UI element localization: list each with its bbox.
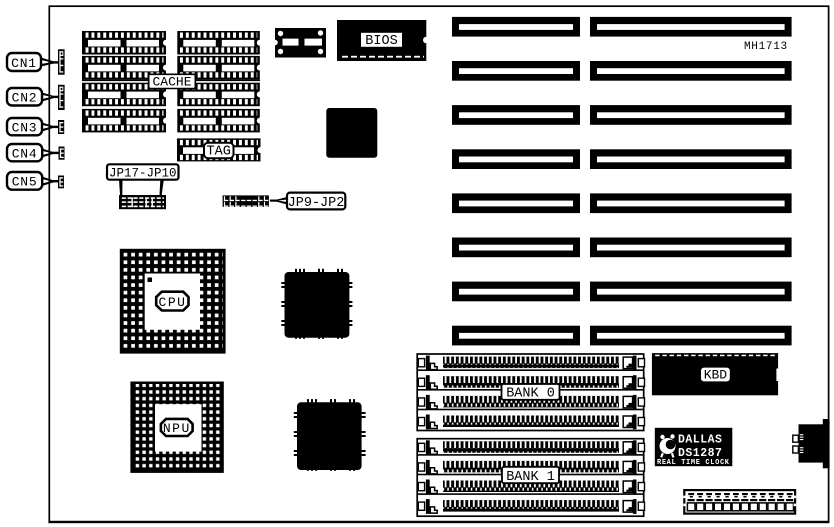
svg-text:CN1: CN1	[11, 56, 37, 71]
svg-text:KBD: KBD	[704, 368, 728, 383]
svg-text:CN2: CN2	[12, 91, 38, 106]
svg-text:JP17-JP10: JP17-JP10	[109, 167, 177, 181]
svg-text:DALLAS: DALLAS	[678, 434, 722, 447]
svg-text:BIOS: BIOS	[365, 34, 397, 49]
svg-text:NPU: NPU	[163, 421, 191, 436]
svg-text:BANK 1: BANK 1	[506, 470, 555, 485]
svg-text:BANK 0: BANK 0	[506, 387, 555, 402]
svg-text:JP9-JP2: JP9-JP2	[288, 196, 345, 211]
svg-text:TAG: TAG	[207, 145, 231, 160]
svg-text:MH1713: MH1713	[744, 41, 788, 53]
svg-text:CN4: CN4	[12, 146, 38, 161]
svg-text:CN5: CN5	[12, 175, 38, 190]
svg-text:CN3: CN3	[12, 120, 38, 135]
svg-text:CACHE: CACHE	[152, 75, 191, 90]
svg-text:REAL TIME CLOCK: REAL TIME CLOCK	[657, 459, 730, 467]
svg-text:CPU: CPU	[159, 295, 187, 310]
